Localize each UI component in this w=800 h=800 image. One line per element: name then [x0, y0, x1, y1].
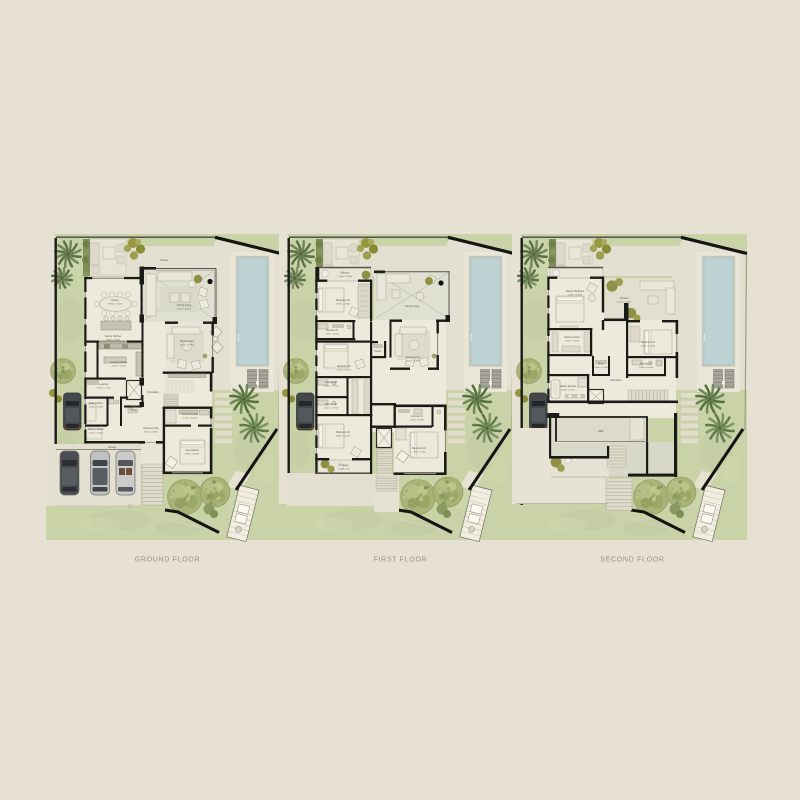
svg-text:Bedroom 01: Bedroom 01	[412, 447, 426, 450]
svg-text:Laundry: Laundry	[99, 383, 109, 386]
svg-text:Entrance Hall: Entrance Hall	[143, 427, 158, 430]
svg-text:Store: Store	[598, 363, 605, 366]
svg-text:Guest Ensuite: Guest Ensuite	[182, 413, 198, 416]
svg-text:1.10m x 5.90m: 1.10m x 5.90m	[338, 276, 353, 278]
svg-text:SECOND FLOOR: SECOND FLOOR	[600, 557, 664, 564]
svg-text:1.90m x 3.20m: 1.90m x 3.20m	[325, 333, 340, 335]
svg-text:Circulation: Circulation	[147, 391, 159, 394]
svg-text:Room: Room	[130, 409, 136, 411]
svg-text:Bedroom 04: Bedroom 04	[336, 299, 350, 302]
svg-text:4.16m x 3.75m: 4.16m x 3.75m	[561, 389, 576, 391]
svg-text:Balcony: Balcony	[341, 272, 351, 275]
svg-text:3.20m x 6.35m: 3.20m x 6.35m	[144, 431, 159, 433]
svg-text:5.45m x 4.95m: 5.45m x 4.95m	[180, 344, 195, 346]
svg-text:3.50m x 3.50m: 3.50m x 3.50m	[565, 340, 580, 342]
svg-text:5.10m x 8.10m: 5.10m x 8.10m	[177, 308, 192, 310]
svg-text:Master Bedroom: Master Bedroom	[566, 290, 584, 293]
svg-text:1.90m x 3.98m: 1.90m x 3.98m	[410, 419, 425, 421]
svg-text:2.35m x 2.55m: 2.35m x 2.55m	[89, 406, 104, 408]
svg-text:4.00m x 5.36m: 4.00m x 5.36m	[337, 369, 352, 371]
svg-text:4.30m x 4.60m: 4.30m x 4.60m	[185, 453, 200, 455]
svg-text:Master Ensuite: Master Ensuite	[560, 385, 577, 388]
svg-text:Master Closet: Master Closet	[564, 336, 580, 339]
svg-text:Dining: Dining	[111, 299, 119, 302]
svg-text:2.00m x 3.75m: 2.00m x 3.75m	[324, 407, 339, 409]
svg-text:Guest Room: Guest Room	[185, 449, 199, 452]
svg-text:Bedroom 03: Bedroom 03	[337, 365, 351, 368]
svg-text:Balcony: Balcony	[340, 464, 350, 467]
svg-text:Family Kitchen: Family Kitchen	[105, 335, 122, 338]
svg-text:1.45m x 6m: 1.45m x 6m	[338, 468, 350, 470]
svg-text:Garage: Garage	[108, 446, 117, 449]
svg-text:FIRST FLOOR: FIRST FLOOR	[374, 557, 428, 564]
svg-text:Terrace: Terrace	[620, 297, 629, 300]
svg-text:Pantry: Pantry	[374, 350, 382, 353]
svg-text:Ensuite 01: Ensuite 01	[411, 415, 423, 418]
svg-text:3.95m x 5.70m: 3.95m x 5.70m	[641, 345, 656, 347]
svg-text:1.80m x 3.80m: 1.80m x 3.80m	[639, 367, 654, 369]
svg-text:2.90m x 5.65m: 2.90m x 5.65m	[112, 365, 127, 367]
svg-text:1.95m x 1.30m: 1.95m x 1.30m	[594, 367, 609, 369]
svg-text:Driver's Room: Driver's Room	[88, 428, 104, 431]
svg-text:3.20m x 2.40m: 3.20m x 2.40m	[89, 432, 104, 434]
svg-text:4.600 x 4.630: 4.600 x 4.630	[412, 451, 426, 453]
svg-text:Family Room: Family Room	[406, 356, 421, 359]
svg-text:5.60m x 6.20m: 5.60m x 6.20m	[108, 303, 123, 305]
svg-text:Ensuite 02: Ensuite 02	[325, 403, 337, 406]
svg-text:Circulation: Circulation	[610, 379, 622, 382]
svg-text:5.16m x 5.66m: 5.16m x 5.66m	[568, 294, 583, 296]
svg-text:MEP: MEP	[598, 430, 604, 433]
svg-text:Terrace: Terrace	[160, 259, 169, 262]
svg-text:Grease Kitchen: Grease Kitchen	[110, 361, 128, 364]
svg-text:2.90m x 5.80m: 2.90m x 5.80m	[106, 339, 121, 341]
svg-text:3.60m x 1.45m: 3.60m x 1.45m	[97, 387, 112, 389]
svg-text:Family Living: Family Living	[180, 340, 195, 343]
svg-text:Ensuite 03: Ensuite 03	[325, 381, 337, 384]
svg-text:Bedroom 02: Bedroom 02	[336, 431, 350, 434]
svg-text:Bedroom 01: Bedroom 01	[641, 341, 655, 344]
svg-text:6.00m x 4.90m: 6.00m x 4.90m	[406, 360, 421, 362]
svg-text:Maid's Room: Maid's Room	[89, 402, 104, 405]
svg-text:4.11m x 7.30m: 4.11m x 7.30m	[617, 301, 631, 303]
svg-text:Ensuite 05: Ensuite 05	[640, 363, 652, 366]
svg-text:Family Living: Family Living	[177, 304, 192, 307]
svg-text:2.10m x 3.20m: 2.10m x 3.20m	[183, 417, 198, 419]
svg-text:Family Living: Family Living	[405, 305, 420, 308]
svg-text:GROUND FLOOR: GROUND FLOOR	[135, 557, 201, 564]
svg-text:Powder: Powder	[129, 405, 138, 408]
svg-text:2.00m x 3.75m: 2.00m x 3.75m	[324, 385, 339, 387]
svg-text:5.40m x 4.90m: 5.40m x 4.90m	[336, 303, 351, 305]
svg-text:Ensuite 04: Ensuite 04	[326, 329, 338, 332]
svg-text:3.85m x 4.65m: 3.85m x 4.65m	[336, 435, 351, 437]
